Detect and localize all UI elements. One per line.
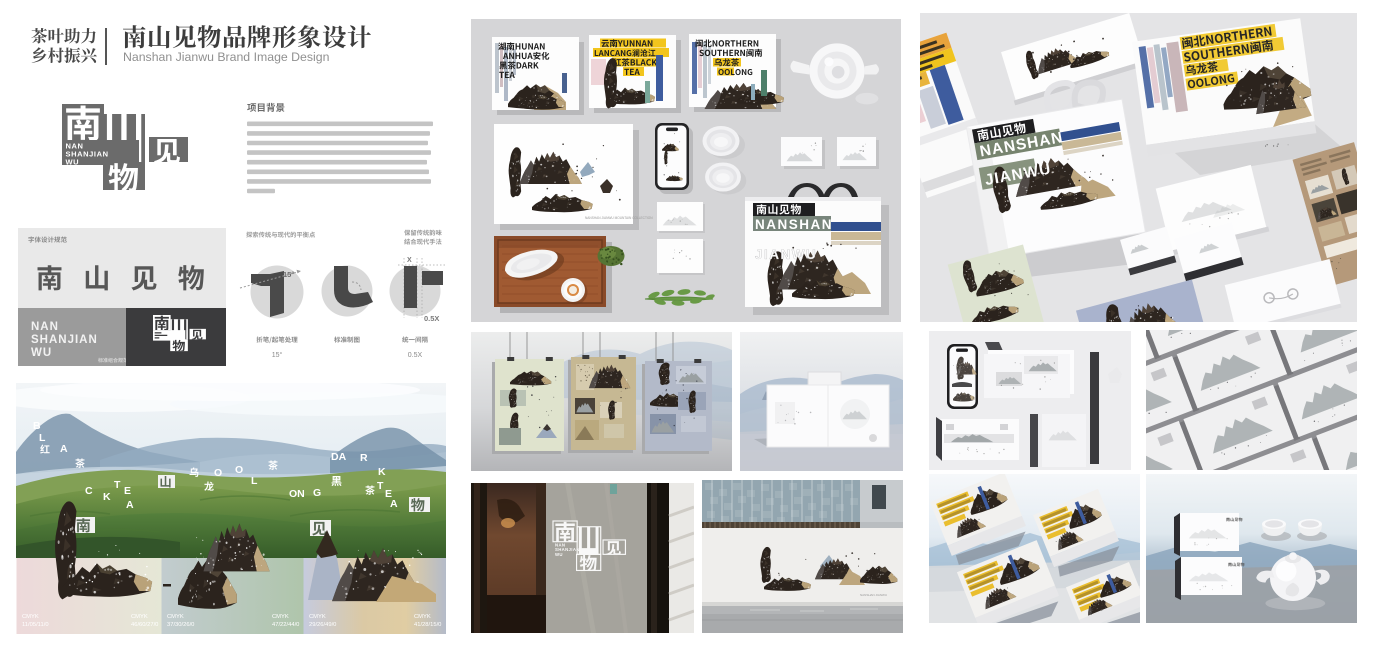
svg-text:R: R — [360, 452, 368, 464]
svg-text:NANSHAN JIANWU: NANSHAN JIANWU — [860, 593, 887, 597]
svg-text:B: B — [33, 420, 41, 432]
svg-text:CMYK: CMYK — [309, 614, 326, 620]
svg-text:L: L — [39, 432, 46, 444]
svg-text:41/28/15/0: 41/28/15/0 — [414, 622, 441, 628]
svg-text:O: O — [214, 467, 222, 479]
svg-text:C: C — [85, 485, 93, 497]
svg-text:47/22/44/0: 47/22/44/0 — [272, 622, 299, 628]
svg-text:Nanshan Jianwu Brand Image Des: Nanshan Jianwu Brand Image Design — [123, 50, 330, 64]
svg-text:CMYK: CMYK — [131, 614, 148, 620]
svg-text:29/26/49/0: 29/26/49/0 — [309, 622, 336, 628]
svg-text:46/60/27/0: 46/60/27/0 — [131, 622, 158, 628]
svg-text:15°: 15° — [272, 351, 283, 359]
svg-text:K: K — [378, 466, 386, 478]
svg-text:37/30/26/0: 37/30/26/0 — [167, 622, 194, 628]
svg-text:T: T — [377, 480, 384, 492]
svg-text:CMYK: CMYK — [272, 614, 289, 620]
svg-text:A: A — [390, 498, 398, 510]
svg-text:K: K — [103, 491, 111, 503]
svg-text:A: A — [60, 443, 68, 455]
svg-text:ON: ON — [289, 488, 305, 500]
svg-text:WU: WU — [66, 158, 80, 167]
svg-text:15°: 15° — [283, 270, 294, 279]
svg-text:CMYK: CMYK — [22, 614, 39, 620]
svg-text:NANSHAN: NANSHAN — [755, 217, 833, 232]
svg-text:WU: WU — [31, 347, 52, 359]
svg-text:E: E — [124, 485, 131, 497]
svg-text:T: T — [114, 479, 121, 491]
svg-text:CMYK: CMYK — [167, 614, 184, 620]
svg-text:NAN: NAN — [31, 321, 59, 333]
svg-text:A: A — [126, 499, 134, 511]
svg-text:O: O — [235, 464, 243, 476]
svg-text:X: X — [407, 257, 412, 264]
svg-text:WU: WU — [555, 552, 563, 557]
svg-text:NANSHAN JIANWU MOUNTAIN COLLEC: NANSHAN JIANWU MOUNTAIN COLLECTION — [585, 216, 653, 220]
svg-text:11/05/11/0: 11/05/11/0 — [22, 622, 49, 628]
svg-text:DA: DA — [331, 451, 347, 463]
svg-text:SHANJIAN: SHANJIAN — [31, 334, 98, 346]
svg-text:G: G — [313, 487, 321, 499]
svg-text:CMYK: CMYK — [414, 614, 431, 620]
svg-text:L: L — [251, 475, 258, 487]
svg-text:0.5X: 0.5X — [408, 352, 423, 359]
svg-text:0.5X: 0.5X — [424, 314, 439, 323]
